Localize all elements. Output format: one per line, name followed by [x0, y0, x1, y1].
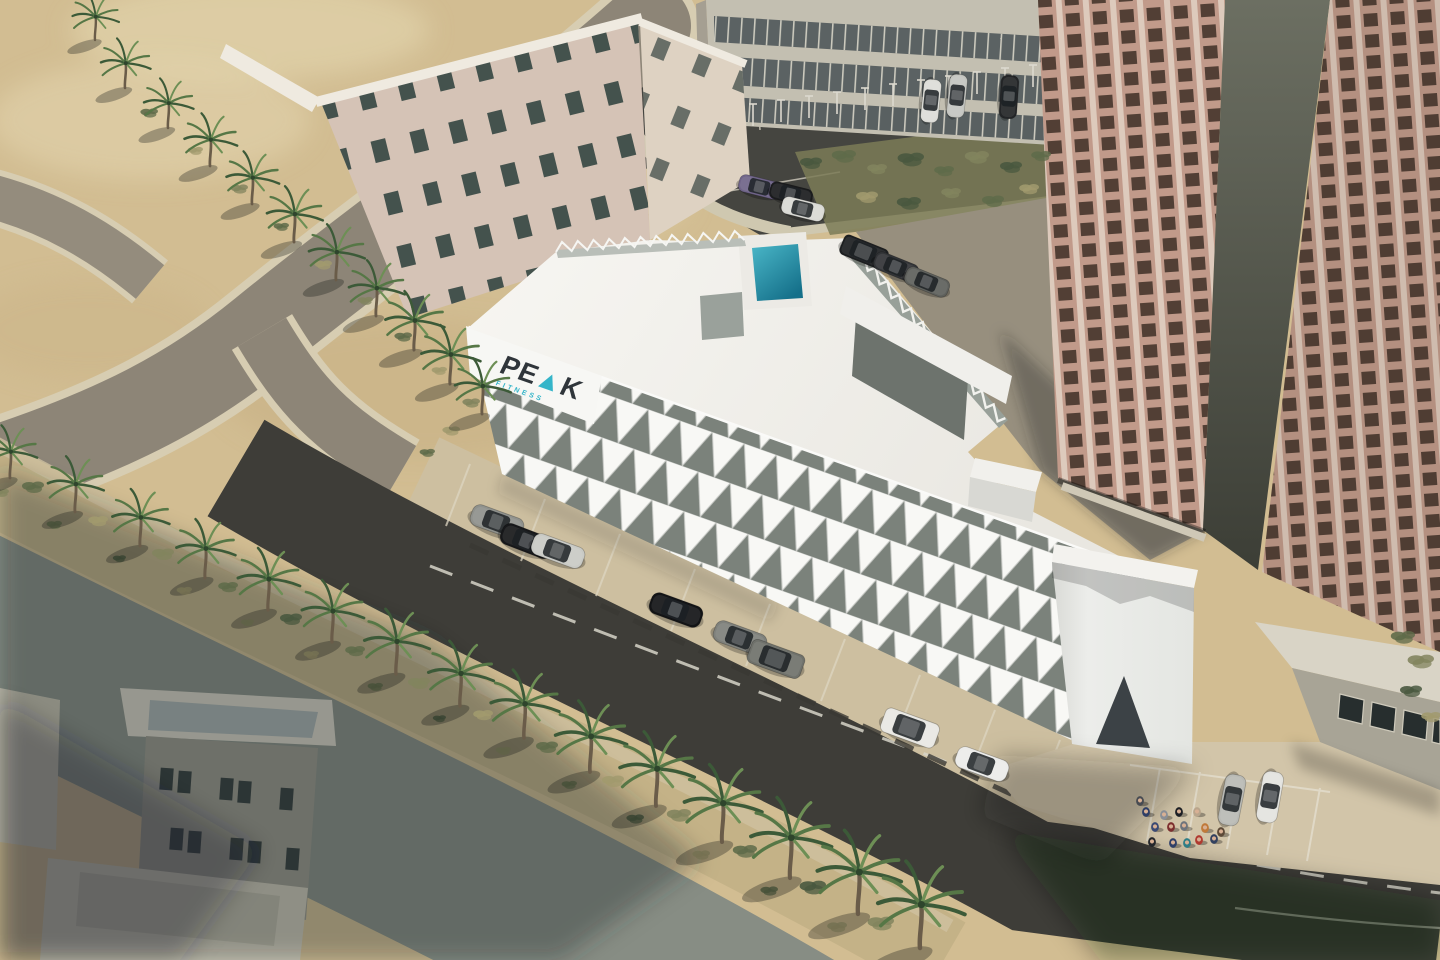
right-end-box: [1052, 544, 1198, 764]
pool-water: [752, 244, 803, 301]
tower-left-tint: [1038, 0, 1225, 530]
court-glass-left: [700, 292, 744, 340]
scene-svg: PE▲K FITNESS: [0, 0, 1440, 960]
aerial-render: PE▲K FITNESS: [0, 0, 1440, 960]
rooftop-pool: [738, 232, 812, 310]
